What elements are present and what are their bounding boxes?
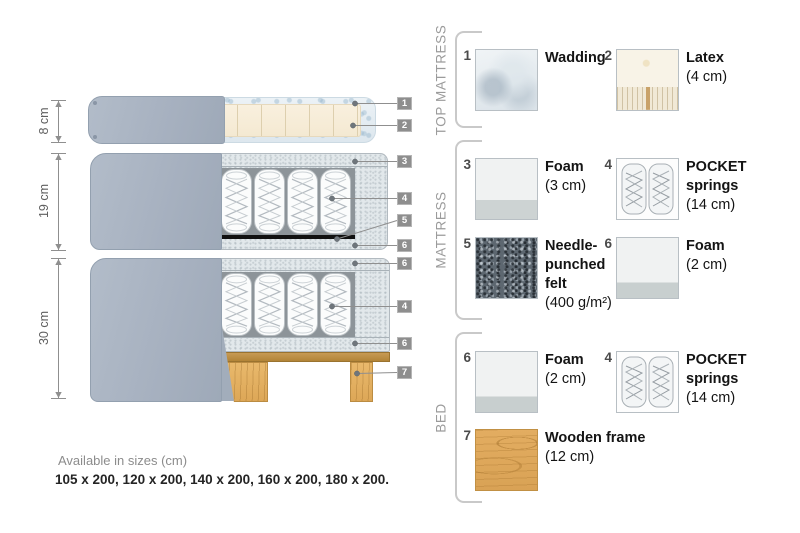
callout-badge-6c: 6 (397, 337, 412, 350)
item-number: 1 (459, 49, 471, 63)
legend-item-wooden-frame: 7 Wooden frame (12 cm) (459, 429, 645, 491)
swatch-pocket-springs (616, 158, 679, 220)
legend-item-wadding: 1 Wadding (459, 49, 606, 111)
item-name: Wooden frame (545, 429, 645, 448)
item-name: Latex (686, 49, 727, 68)
callout-badge-7: 7 (397, 366, 412, 379)
legend-item-latex: 2 Latex (4 cm) (600, 49, 727, 111)
legend-item-foam-3cm: 3 Foam (3 cm) (459, 158, 586, 220)
swatch-wadding (475, 49, 538, 111)
item-size: (4 cm) (686, 68, 727, 87)
legend-item-pocket-springs-bed: 4 POCKET springs (14 cm) (600, 351, 762, 413)
item-size: (14 cm) (686, 389, 762, 408)
available-sizes-title: Available in sizes (cm) (58, 453, 187, 468)
dimension-label-top-mattress: 8 cm (37, 107, 51, 134)
callout-badge-5: 5 (397, 214, 412, 227)
legend-item-foam-2cm-bed: 6 Foam (2 cm) (459, 351, 586, 413)
item-size: (3 cm) (545, 177, 586, 196)
item-name: POCKET springs (686, 158, 762, 196)
item-name: POCKET springs (686, 351, 762, 389)
swatch-latex (616, 49, 679, 111)
section-title-bed: BED (434, 403, 449, 433)
swatch-foam (616, 237, 679, 299)
swatch-wood (475, 429, 538, 491)
item-number: 6 (600, 237, 612, 251)
section-title-mattress: MATTRESS (434, 191, 449, 268)
item-number: 6 (459, 351, 471, 365)
swatch-felt (475, 237, 538, 299)
callout-badge-2: 2 (397, 119, 412, 132)
swatch-pocket-springs (616, 351, 679, 413)
item-number: 4 (600, 158, 612, 172)
item-name: Needle-punched felt (545, 237, 607, 294)
legend-item-pocket-springs: 4 POCKET springs (14 cm) (600, 158, 762, 220)
callout-badge-4b: 4 (397, 300, 412, 313)
callout-badge-1: 1 (397, 97, 412, 110)
item-name: Foam (545, 158, 586, 177)
legend-item-foam-2cm: 6 Foam (2 cm) (600, 237, 727, 299)
item-size: (14 cm) (686, 196, 762, 215)
swatch-foam (475, 351, 538, 413)
item-number: 2 (600, 49, 612, 63)
section-title-top-mattress: TOP MATTRESS (434, 25, 449, 136)
item-number: 5 (459, 237, 471, 251)
item-name: Wadding (545, 49, 606, 68)
item-size: (2 cm) (545, 370, 586, 389)
item-name: Foam (686, 237, 727, 256)
legend-item-felt: 5 Needle-punched felt (400 g/m²) (459, 237, 612, 313)
callout-badge-6b: 6 (397, 257, 412, 270)
item-number: 3 (459, 158, 471, 172)
dimension-label-mattress: 19 cm (37, 184, 51, 218)
available-sizes-list: 105 x 200, 120 x 200, 140 x 200, 160 x 2… (55, 472, 389, 487)
swatch-foam (475, 158, 538, 220)
item-size: (2 cm) (686, 256, 727, 275)
callout-badge-4: 4 (397, 192, 412, 205)
bed-construction-infographic: 8 cm 19 cm 30 cm 1 2 3 4 5 6 6 4 6 7 Ava… (0, 0, 800, 533)
leader-lines (0, 0, 420, 420)
callout-badge-3: 3 (397, 155, 412, 168)
dimension-label-bed: 30 cm (37, 311, 51, 345)
item-name: Foam (545, 351, 586, 370)
item-number: 4 (600, 351, 612, 365)
item-size: (12 cm) (545, 448, 645, 467)
callout-badge-6a: 6 (397, 239, 412, 252)
item-number: 7 (459, 429, 471, 443)
